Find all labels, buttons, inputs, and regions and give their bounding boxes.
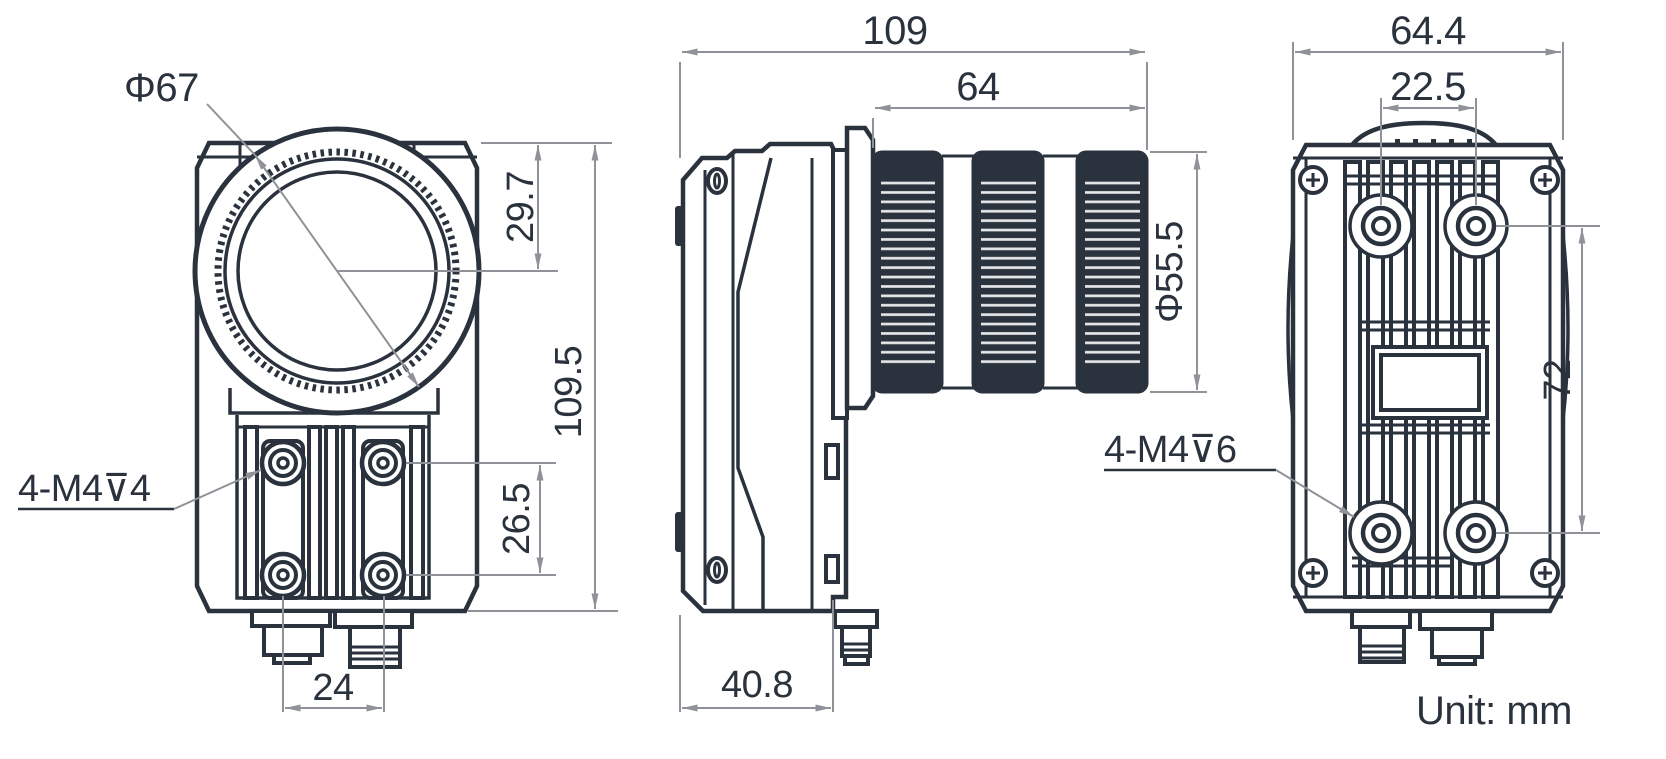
side-tab-upper — [826, 445, 838, 478]
dim-side-lens-length: 64 — [956, 65, 1000, 109]
mount-hole — [362, 554, 404, 596]
dim-back-hole-h: 22.5 — [1390, 65, 1466, 109]
phillips-screw — [1300, 560, 1326, 586]
side-connector — [835, 611, 877, 664]
label-front-thread-note: 4-M4⊽4 — [18, 468, 151, 510]
label-front-lens-diameter: Φ67 — [124, 66, 199, 110]
back-top-bump — [1352, 123, 1496, 145]
phillips-screw — [1300, 167, 1326, 193]
lens-ring-2-knurl — [981, 180, 1036, 366]
dim-side-lens-diameter: Φ55.5 — [1149, 221, 1191, 323]
camera-dimension-drawing: 29.7 109.5 26.5 24 Φ67 4-M4⊽4 — [0, 0, 1666, 759]
dim-back-width: 64.4 — [1390, 9, 1466, 53]
dim-side-length: 109 — [862, 9, 927, 53]
phillips-screw — [1532, 167, 1558, 193]
side-view — [675, 128, 1147, 664]
back-connector-right — [1420, 611, 1492, 664]
mount-hole — [262, 554, 304, 596]
front-connector-left — [252, 611, 330, 663]
dim-front-height: 109.5 — [548, 346, 590, 439]
back-connector-left — [1352, 611, 1410, 662]
front-view — [195, 129, 479, 667]
dim-front-hole-v: 26.5 — [496, 483, 538, 555]
front-connector-right — [335, 611, 412, 667]
mount-hole — [262, 442, 304, 484]
dim-side-depth: 40.8 — [721, 664, 793, 706]
side-lens-rings — [873, 152, 1147, 392]
side-screw-bottom — [708, 558, 726, 582]
mount-hole — [1350, 502, 1412, 564]
unit-note: Unit: mm — [1416, 689, 1572, 733]
dim-front-lens-center: 29.7 — [500, 171, 542, 243]
technical-drawing-page: 29.7 109.5 26.5 24 Φ67 4-M4⊽4 — [0, 0, 1666, 759]
lens-ring-1-knurl — [881, 180, 935, 366]
back-label-plate — [1373, 347, 1487, 418]
back-view — [1288, 123, 1568, 664]
dim-back-hole-v: 72 — [1537, 359, 1579, 400]
mount-hole — [362, 442, 404, 484]
side-bumper-top — [675, 206, 683, 246]
phillips-screw — [1532, 560, 1558, 586]
label-back-thread-note: 4-M4⊽6 — [1104, 429, 1237, 471]
lens-ring-3-knurl — [1085, 180, 1140, 366]
mount-flange-front — [847, 128, 873, 408]
dim-front-hole-h: 24 — [312, 667, 354, 709]
side-tab-lower — [826, 556, 838, 582]
side-screw-top — [708, 169, 726, 193]
side-bumper-bottom — [675, 512, 683, 552]
